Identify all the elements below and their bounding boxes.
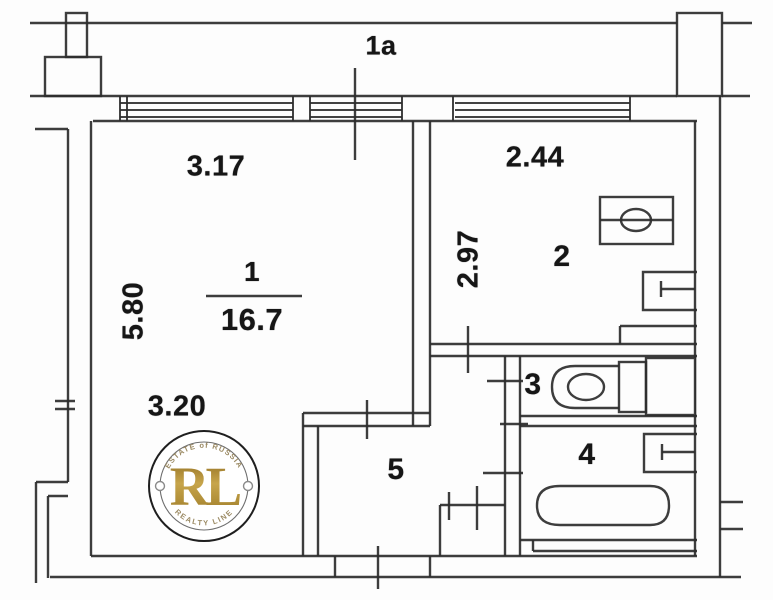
watermark-left-dot xyxy=(156,482,165,491)
chimney-column xyxy=(66,13,87,57)
balcony-label: 1a xyxy=(365,31,396,62)
dim-kitchen-depth: 2.97 xyxy=(453,230,486,288)
bathtub-icon xyxy=(537,486,669,525)
bath-sink-icon xyxy=(644,434,697,472)
watermark-monogram: RL xyxy=(170,456,241,517)
toilet-icon xyxy=(552,358,695,415)
dim-kitchen-width: 2.44 xyxy=(506,142,564,175)
room-kitchen-number: 2 xyxy=(553,240,570,274)
room-living-area: 16.7 xyxy=(221,302,283,338)
dim-living-depth: 5.80 xyxy=(118,282,151,340)
room-hallway-number: 5 xyxy=(387,453,404,487)
duct-shaft xyxy=(646,358,695,415)
watermark-right-dot xyxy=(244,482,253,491)
watermark-badge: ESTATE of RUSSIA REALTY LINE RL xyxy=(149,431,259,541)
room-living-number: 1 xyxy=(244,256,260,288)
dim-living-width-bottom: 3.20 xyxy=(148,391,206,424)
room-wc-number: 3 xyxy=(524,368,541,402)
window-glazing xyxy=(120,96,630,121)
floor-plan: ESTATE of RUSSIA REALTY LINE RL 1a 3.17 … xyxy=(0,0,773,600)
floor-plan-drawing: ESTATE of RUSSIA REALTY LINE RL xyxy=(0,0,773,600)
kitchen-sink-icon xyxy=(643,272,697,310)
dim-living-width-top: 3.17 xyxy=(187,151,245,184)
room-bathroom-number: 4 xyxy=(578,438,595,472)
stove-icon xyxy=(600,197,673,244)
